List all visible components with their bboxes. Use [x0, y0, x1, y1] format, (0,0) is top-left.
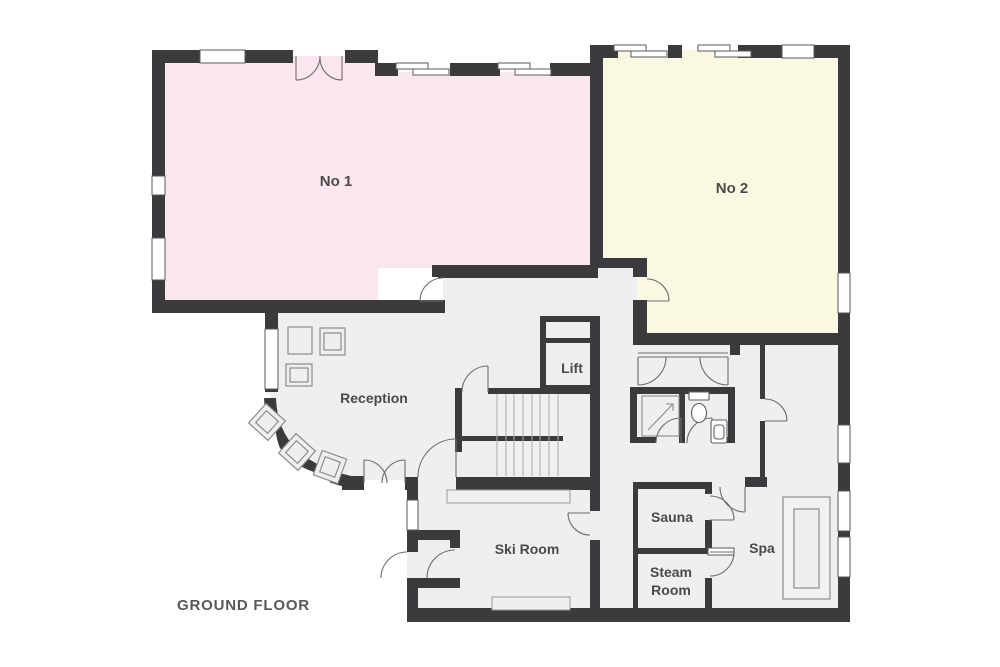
- window-no1-left-lower: [152, 238, 165, 280]
- label-reception: Reception: [340, 390, 408, 406]
- label-steam-room-line1: Steam: [650, 564, 692, 580]
- room-no2-fill-b: [637, 258, 840, 338]
- window-reception-left: [265, 329, 278, 389]
- label-steam-room-line2: Room: [651, 582, 691, 598]
- window-spa-right-upper: [838, 425, 850, 463]
- window-spa-right-lower: [838, 537, 850, 577]
- label-ski-room: Ski Room: [495, 541, 560, 557]
- room-no1-fill-b: [375, 72, 590, 268]
- window-no2-right: [838, 273, 850, 313]
- reception-chair-2: [286, 364, 312, 386]
- ski-bench-top: [447, 490, 570, 503]
- label-no2: No 2: [716, 180, 749, 197]
- page-title: GROUND FLOOR: [177, 597, 310, 614]
- label-lift: Lift: [561, 360, 583, 376]
- floor-plan: No 1 No 2 Reception Lift Ski Room Sauna …: [0, 0, 1000, 667]
- floor-plan-svg: No 1 No 2 Reception Lift Ski Room Sauna …: [0, 0, 1000, 667]
- door-no1-hall: [420, 278, 443, 301]
- window-no2-top: [782, 45, 814, 58]
- window-no1-top: [200, 50, 245, 63]
- spa-pool: [783, 497, 830, 599]
- reception-table: [288, 327, 312, 354]
- label-sauna: Sauna: [651, 509, 693, 525]
- ski-bench-bottom: [492, 597, 570, 610]
- room-no2-fill-a: [595, 50, 840, 258]
- sink: [711, 420, 727, 443]
- door-ski-exterior: [381, 552, 407, 578]
- window-spa-right-mid: [838, 491, 850, 531]
- reception-chair-1: [320, 328, 345, 355]
- label-spa: Spa: [749, 540, 775, 556]
- window-no1-left-upper: [152, 176, 165, 195]
- window-ski-left: [407, 500, 418, 530]
- label-no1: No 1: [320, 173, 353, 190]
